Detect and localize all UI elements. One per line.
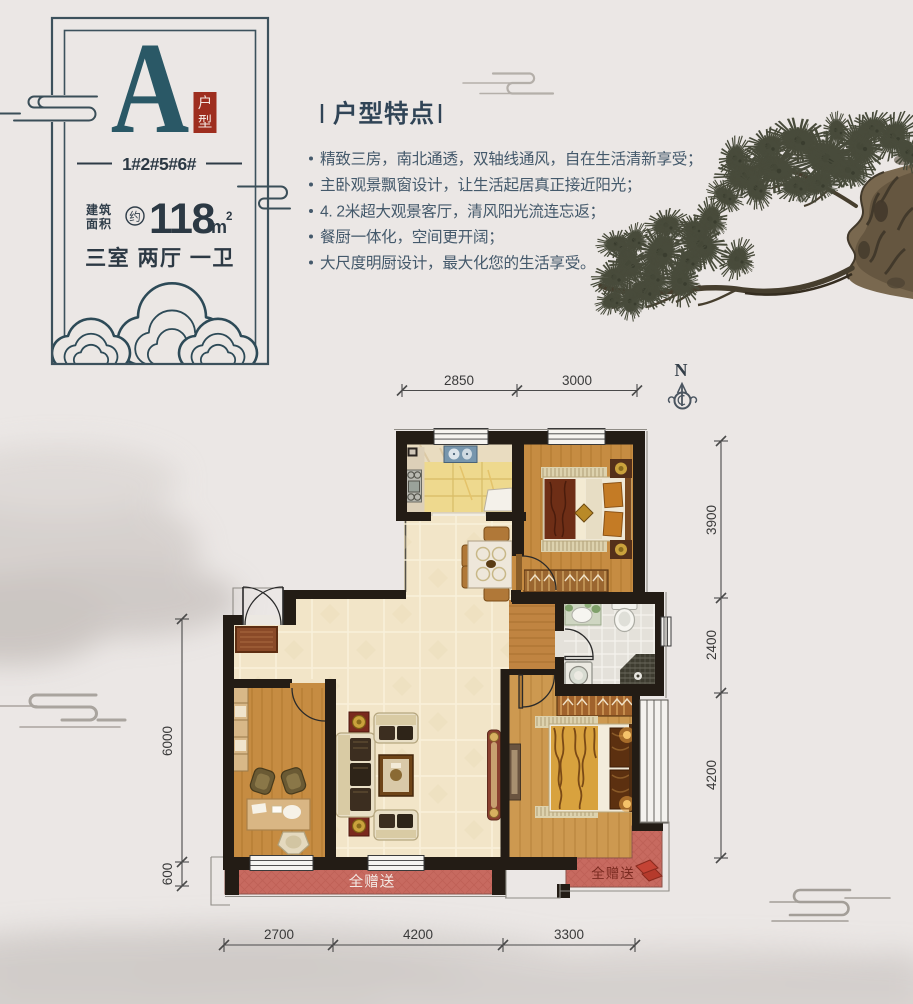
- svg-text:大尺度明厨设计，最大化您的生活享受。: 大尺度明厨设计，最大化您的生活享受。: [320, 254, 595, 272]
- svg-text:餐厨一体化，空间更开阔；: 餐厨一体化，空间更开阔；: [320, 228, 504, 246]
- svg-text:m: m: [211, 217, 227, 237]
- svg-text:2: 2: [226, 211, 232, 223]
- svg-text:4. 2米超大观景客厅，清风阳光流连忘返；: 4. 2米超大观景客厅，清风阳光流连忘返；: [320, 203, 605, 221]
- svg-text:A: A: [111, 17, 190, 162]
- svg-text:型: 型: [198, 114, 213, 131]
- svg-text:2400: 2400: [704, 630, 719, 660]
- svg-text:全赠送: 全赠送: [591, 865, 635, 881]
- svg-text:户: 户: [198, 95, 213, 112]
- svg-text:3300: 3300: [554, 927, 584, 942]
- svg-text:3000: 3000: [562, 373, 592, 388]
- svg-text:约: 约: [129, 210, 141, 224]
- svg-text:面积: 面积: [86, 216, 112, 231]
- svg-text:主卧观景飘窗设计，让生活起居真正接近阳光；: 主卧观景飘窗设计，让生活起居真正接近阳光；: [320, 176, 641, 194]
- svg-text:全赠送: 全赠送: [349, 873, 396, 891]
- svg-text:4200: 4200: [704, 760, 719, 790]
- svg-text:三室 两厅 一卫: 三室 两厅 一卫: [85, 246, 235, 270]
- svg-text:2700: 2700: [264, 927, 294, 942]
- svg-text:N: N: [675, 360, 688, 380]
- svg-text:1#2#5#6#: 1#2#5#6#: [122, 154, 197, 174]
- svg-text:6000: 6000: [160, 726, 175, 756]
- svg-text:户型特点: 户型特点: [333, 99, 435, 128]
- svg-text:600: 600: [160, 863, 175, 886]
- svg-text:118: 118: [149, 195, 214, 243]
- svg-text:4200: 4200: [403, 927, 433, 942]
- svg-text:3900: 3900: [704, 505, 719, 535]
- svg-text:精致三房，南北通透，双轴线通风，自在生活清新享受；: 精致三房，南北通透，双轴线通风，自在生活清新享受；: [320, 150, 702, 168]
- svg-text:建筑: 建筑: [85, 202, 112, 217]
- svg-text:2850: 2850: [444, 373, 474, 388]
